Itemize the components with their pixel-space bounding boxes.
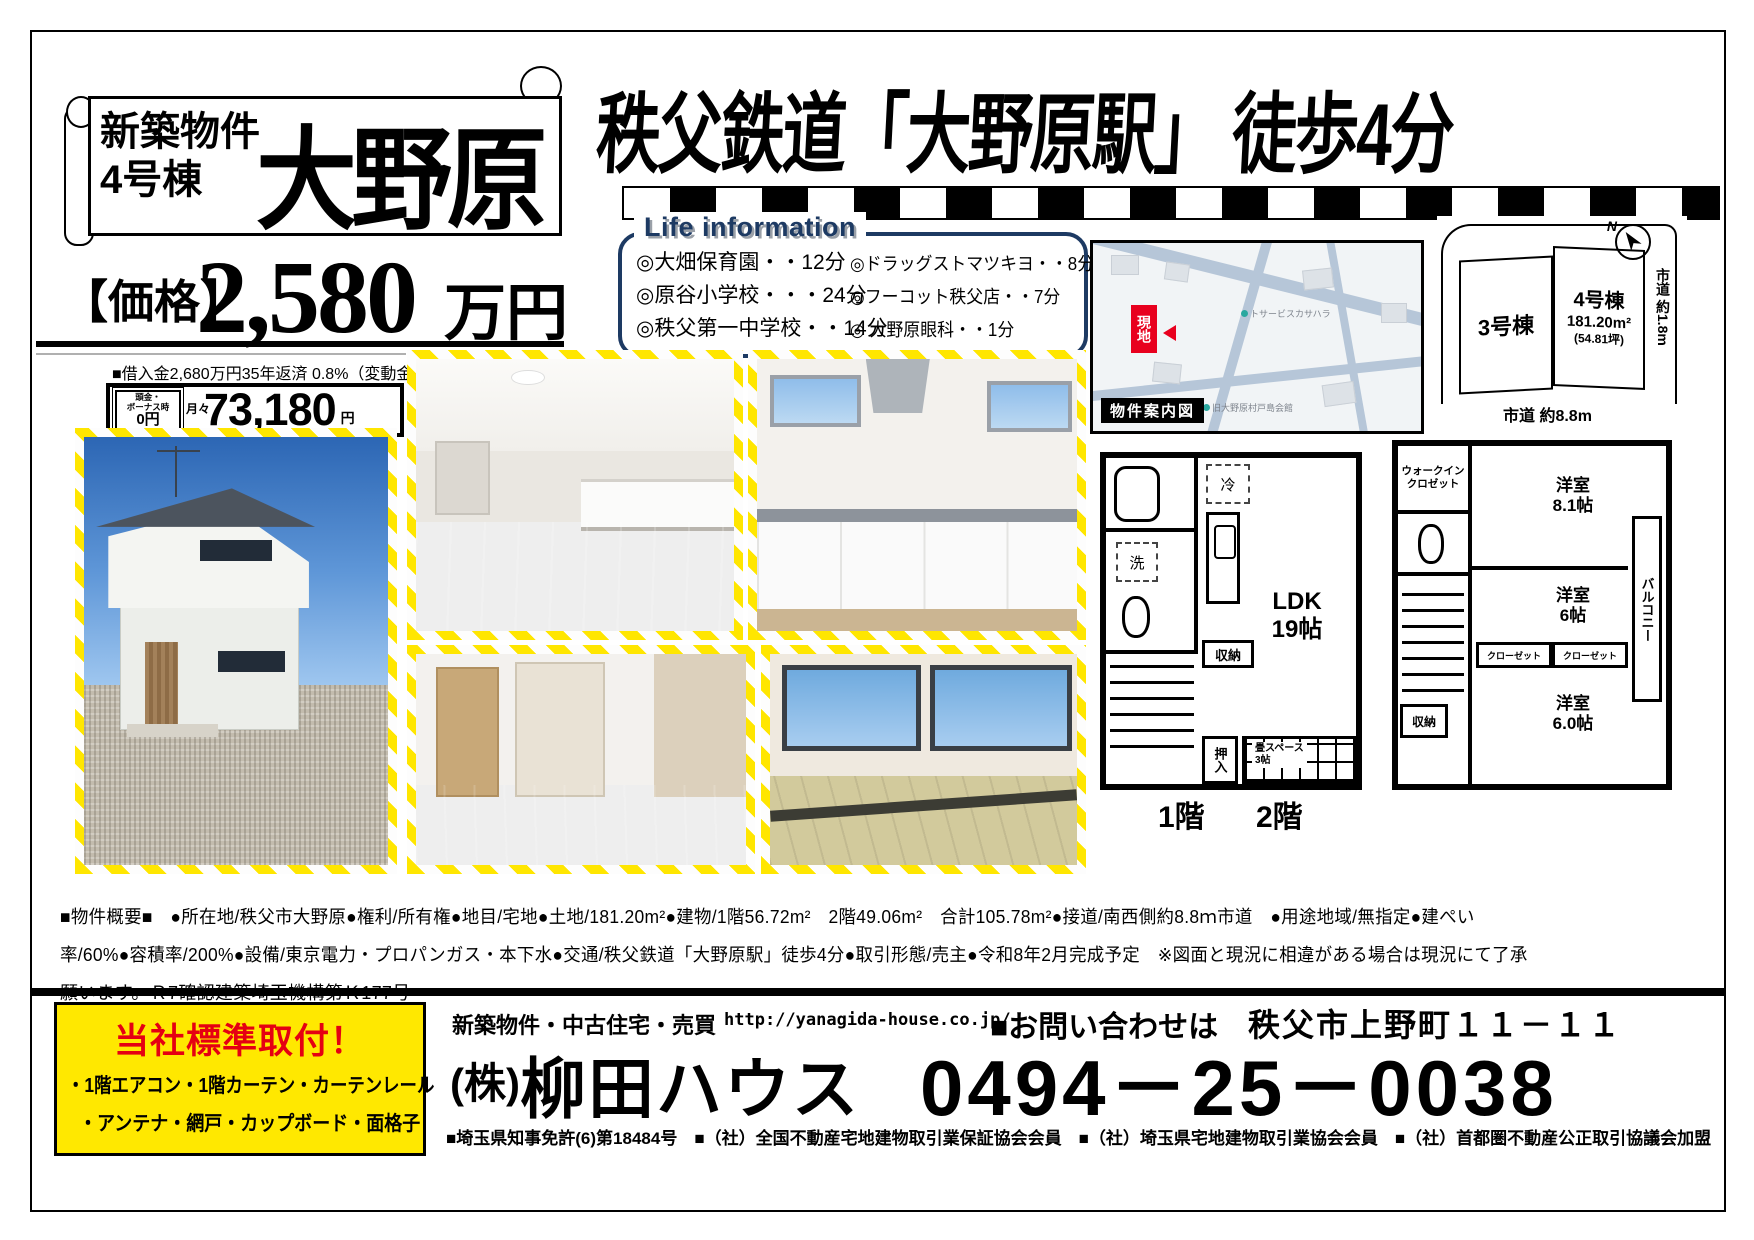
ribbon-subtitle: 新築物件 4号棟 [100,108,260,204]
kitchen-photo-image [757,359,1077,631]
oshiire-closet: 押入 [1202,736,1238,784]
deposit-value: 0円 [117,412,179,427]
phone-number: 0494－25－0038 [920,1026,1558,1138]
life-item: ◎フーコット秩父店・・7分 [850,281,1094,314]
overview-line-1: ■物件概要■ ●所在地/秩父市大野原●権利/所有権●地目/宅地●土地/181.2… [60,903,1475,929]
lot-4: 4号棟 181.20m² (54.81坪) [1553,246,1645,390]
toilet-icon [1122,596,1150,638]
closet-1: クローゼット [1476,642,1552,668]
ribbon-subtitle-line1: 新築物件 [100,108,260,156]
bathtub-icon [1114,466,1160,522]
station-banner: 秩父鉄道「大野原駅」 徒歩4分 [594,64,1456,191]
monthly-label: 月々 [186,403,199,417]
map-building [1381,303,1407,323]
price-value: 2,580 [196,238,415,357]
ldk-label: LDK 19帖 [1242,588,1352,643]
western-room-photo-image [416,654,746,865]
storage-2f: 収納 [1400,704,1448,738]
map-building [1302,267,1334,290]
room-8-1-label: 洋室 8.1帖 [1528,476,1618,515]
balcony-label: バルコニー [1638,577,1657,642]
site-road-bottom: 市道 約8.8m [1503,402,1592,426]
company-name: 柳田ハウス [520,1052,860,1126]
lot-4-tsubo: (54.81坪) [1574,331,1624,348]
storage-1f-label: 収納 [1215,645,1241,664]
storage-2f-label: 収納 [1412,713,1436,730]
site-plan: 3号棟 4号棟 181.20m² (54.81坪) 市道 約1.8m 市道 約8… [1437,216,1687,428]
balcony: バルコニー [1632,516,1662,702]
tatami-room-photo-image [770,654,1077,865]
life-info-right-column: ◎ドラッグストマツキヨ・・8分 ◎フーコット秩父店・・7分 ◎ 大野原眼科・・1… [850,248,1094,347]
map-poi-text: 旧大野原村戸島会館 [1212,403,1293,413]
living-room-photo-image [416,359,734,631]
life-item: ◎ 大野原眼科・・1分 [850,314,1094,347]
toilet-2f-icon [1418,524,1444,564]
fridge-label: 冷 [1220,474,1235,495]
walk-in-closet-label: ウォークイン クロゼット [1402,465,1465,490]
map-pin-icon [1203,404,1210,411]
location-map: 現地 トサービスカサハラ 旧大野原村戸島会館 物件案内図 [1090,240,1424,434]
lot-3: 3号棟 [1459,256,1553,395]
price-unit: 万円 [444,262,568,352]
site-road-right: 市道 約1.8m [1653,268,1673,346]
map-arrow-icon [1163,325,1176,341]
laundry-area: 洗 [1116,542,1158,582]
storage-1f: 収納 [1202,640,1254,668]
closet-1-label: クローゼット [1487,649,1541,662]
map-road [1090,349,1424,403]
kitchen-counter [1206,512,1240,604]
closet-2-label: クローゼット [1563,649,1617,662]
floor-1-caption: 1階 [1158,792,1205,836]
lot-4-name: 4号棟 [1573,288,1624,315]
lot-3-label: 3号棟 [1478,308,1534,343]
stairs-1f [1110,664,1194,748]
standard-equipment-box: 当社標準取付！ ・1階エアコン・1階カーテン・カーテンレール ・アンテナ・網戸・… [54,1002,426,1156]
closet-2: クローゼット [1552,642,1628,668]
walk-in-closet: ウォークイン クロゼット [1398,446,1468,514]
map-building [1164,261,1190,282]
loan-note: ■借入金2,680万円35年返済 0.8%（変動金利）■ [112,360,454,384]
western-room-photo [407,645,755,874]
tatami-space-label: 畳スペース 3帖 [1252,742,1307,768]
floor-plan-2f: ウォークイン クロゼット 収納 洋室 8.1帖 洋室 6帖 クローゼット クロー… [1392,440,1672,790]
standard-equipment-line1: ・1階エアコン・1階カーテン・カーテンレール [67,1069,434,1098]
overview-line-2: 率/60%●容積率/200%●設備/東京電力・プロパンガス・本下水●交通/秩父鉄… [60,941,1528,967]
life-info-title: Life information [634,212,866,243]
standard-equipment-title: 当社標準取付！ [57,1013,423,1064]
map-caption: 物件案内図 [1101,398,1204,423]
floor-plan-1f: 洗 冷 LDK 19帖 収納 押入 畳スペース 3帖 [1100,452,1362,790]
map-pin-icon [1241,310,1248,317]
flyer-page: 新築物件 4号棟 大野原 【価格】 2,580 万円 ■借入金2,680万円35… [0,0,1754,1240]
site-marker: 現地 [1131,305,1157,353]
map-poi-label: トサービスカサハラ [1241,307,1331,320]
map-building [1322,381,1357,407]
standard-equipment-line2: ・アンテナ・網戸・カップボード・面格子 [79,1107,420,1136]
compass-icon [1615,224,1651,260]
property-name: 大野原 [256,90,542,252]
map-poi-label: 旧大野原村戸島会館 [1203,401,1293,414]
fridge-area: 冷 [1206,464,1250,504]
footer-divider [30,988,1724,996]
oshiire-label: 押入 [1211,747,1230,773]
room-6-label: 洋室 6帖 [1528,586,1618,625]
map-building [1152,362,1182,385]
price-underline [36,341,564,347]
company-prefix: (株) [450,1060,520,1107]
deposit-box: 頭金・ ボーナス時 0円 [115,390,181,430]
thin-divider [36,353,406,355]
monthly-unit: 円 [341,408,355,428]
exterior-photo-image [84,437,388,865]
kitchen-photo [748,350,1086,640]
map-poi-text: トサービスカサハラ [1250,309,1331,319]
compass-n-label: N [1607,218,1617,234]
ribbon-subtitle-line2: 4号棟 [100,156,260,204]
life-item: ◎ドラッグストマツキヨ・・8分 [850,248,1094,281]
floor-2-caption: 2階 [1256,792,1303,836]
laundry-label: 洗 [1129,552,1144,573]
license-info: ■埼玉県知事免許(6)第18484号 ■（社）全国不動産宅地建物取引業保証協会会… [446,1124,1711,1149]
exterior-photo [75,428,397,874]
room-6-0-label: 洋室 6.0帖 [1528,694,1618,733]
stairs-2f [1402,582,1464,692]
life-info-box: ◎大畑保育園・・12分 ◎原谷小学校・・・24分 ◎秩父第一中学校・・14分 ◎… [618,232,1088,358]
tatami-room-photo [761,645,1086,874]
map-building [1111,255,1139,275]
living-room-photo [407,350,743,640]
deposit-label: 頭金・ ボーナス時 [117,393,179,412]
company-name-row: (株)柳田ハウス [450,1036,860,1132]
